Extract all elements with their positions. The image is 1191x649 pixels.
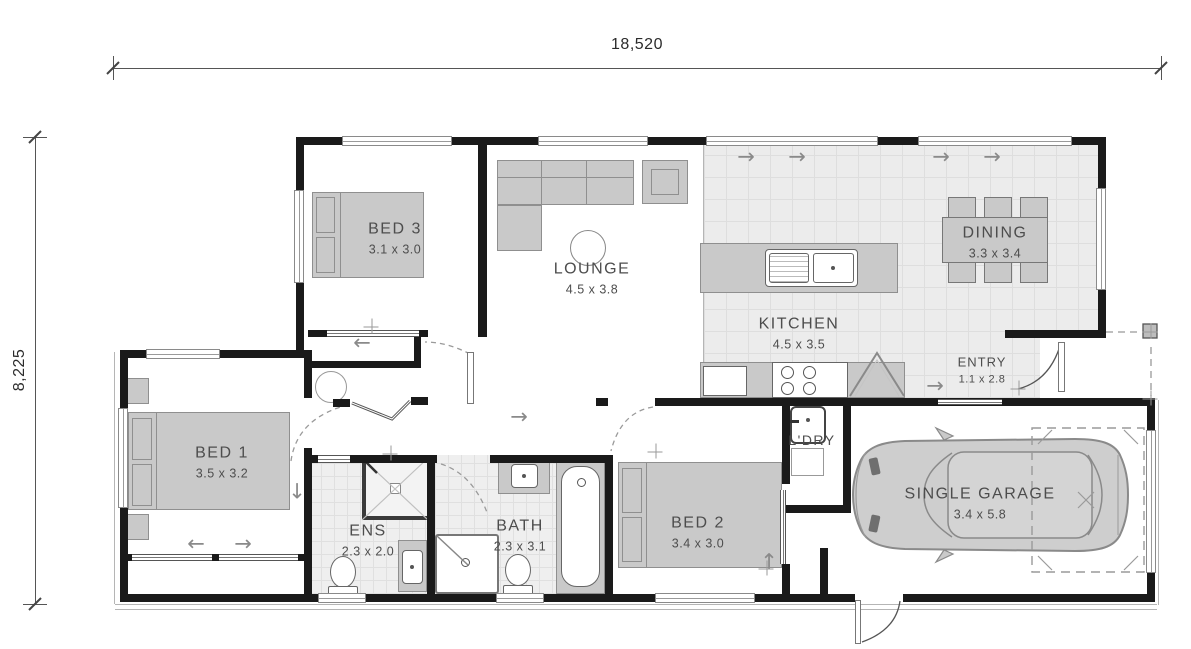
wall-segment xyxy=(296,145,304,190)
room-name: KITCHEN xyxy=(759,312,840,335)
slide-arrow-right-icon: → xyxy=(932,147,950,168)
room-name: L'DRY xyxy=(788,430,835,450)
rear-door-leaf xyxy=(855,600,861,644)
wall-segment xyxy=(605,455,613,594)
window xyxy=(538,136,648,146)
shower-head-icon xyxy=(366,462,377,473)
wall-segment xyxy=(120,594,318,602)
junction-cross xyxy=(759,561,774,576)
room-label-dining: DINING 3.3 x 3.4 xyxy=(963,221,1028,262)
wall-segment xyxy=(544,594,655,602)
room-label-garage: SINGLE GARAGE 3.4 x 5.8 xyxy=(904,482,1055,523)
room-dims: 3.4 x 5.8 xyxy=(904,506,1055,524)
slide-arrow-right-icon: → xyxy=(926,376,944,397)
slide-arrow-right-icon: → xyxy=(510,407,528,428)
garage-internal-door xyxy=(938,399,1002,405)
window xyxy=(655,593,755,603)
wall-segment xyxy=(308,361,421,368)
wall-segment xyxy=(366,594,496,602)
ldry-cavity-slider xyxy=(780,490,786,564)
window xyxy=(146,349,220,359)
floor-plan: BED 3 3.1 x 3.0 LOUNGE 4.5 x 3.8 KITCHEN… xyxy=(0,0,1191,649)
lounge-door-leaf xyxy=(467,352,474,404)
room-label-bed3: BED 3 3.1 x 3.0 xyxy=(368,217,422,258)
wall-segment xyxy=(1147,573,1155,602)
slide-arrow-right-icon: → xyxy=(737,147,755,168)
room-label-kitchen: KITCHEN 4.5 x 3.5 xyxy=(759,312,840,353)
wall-segment xyxy=(1005,330,1106,338)
wall-segment xyxy=(655,398,1147,406)
front-door-leaf xyxy=(1058,342,1065,392)
wall-segment xyxy=(304,448,312,594)
room-label-bed1: BED 1 3.5 x 3.2 xyxy=(195,441,249,482)
window xyxy=(342,136,452,146)
ens-cavity-slider xyxy=(318,455,350,463)
wall-segment xyxy=(843,406,851,505)
wall-segment xyxy=(820,548,828,594)
slide-arrow-left-icon: ← xyxy=(187,534,205,555)
bath-shower-door xyxy=(437,536,468,565)
wall-segment xyxy=(427,455,435,594)
wall-segment xyxy=(878,137,918,145)
room-name: LOUNGE xyxy=(554,257,631,280)
window xyxy=(1096,188,1106,290)
dimension-line-left xyxy=(35,137,36,604)
room-label-ldry: L'DRY xyxy=(788,430,835,450)
junction-cross xyxy=(1143,391,1158,406)
dimension-line-top xyxy=(113,68,1161,69)
pantry-doors xyxy=(850,353,904,396)
wall-segment xyxy=(1072,137,1106,145)
wall-segment xyxy=(903,594,1155,602)
room-dims: 1.1 x 2.8 xyxy=(958,372,1007,388)
slide-arrow-right-icon: → xyxy=(788,147,806,168)
junction-cross xyxy=(364,319,379,334)
room-name: SINGLE GARAGE xyxy=(904,482,1055,505)
room-dims: 3.3 x 3.4 xyxy=(963,245,1028,263)
plan-annotations xyxy=(0,0,1191,649)
room-label-lounge: LOUNGE 4.5 x 3.8 xyxy=(554,257,631,298)
wall-segment xyxy=(411,397,428,405)
junction-cross xyxy=(383,446,398,461)
room-label-ens: ENS 2.3 x 2.0 xyxy=(342,519,394,560)
wall-segment xyxy=(308,330,327,337)
junction-cross xyxy=(1011,381,1026,396)
slide-arrow-right-icon: → xyxy=(234,534,252,555)
room-name: BED 3 xyxy=(368,217,422,240)
wall-segment xyxy=(782,564,790,594)
hall-robe-doors xyxy=(352,401,410,419)
room-dims: 2.3 x 2.0 xyxy=(342,543,394,561)
room-dims: 3.4 x 3.0 xyxy=(671,535,725,553)
room-label-bath: BATH 2.3 x 3.1 xyxy=(494,514,546,555)
slide-arrow-left-icon: ← xyxy=(353,333,371,354)
wall-segment xyxy=(596,398,608,406)
room-dims: 4.5 x 3.5 xyxy=(759,336,840,354)
wall-segment xyxy=(1098,145,1106,188)
slide-arrow-down-icon: ↓ xyxy=(288,482,306,503)
room-name: BED 2 xyxy=(671,511,725,534)
slider-cap xyxy=(212,554,219,561)
slider-cap xyxy=(126,554,132,561)
window xyxy=(496,593,544,603)
wall-segment xyxy=(333,399,350,407)
room-name: ENS xyxy=(342,519,394,542)
slide-arrow-right-icon: → xyxy=(983,147,1001,168)
wall-segment xyxy=(120,350,148,358)
wall-segment xyxy=(120,358,128,408)
dimension-width-label: 18,520 xyxy=(611,36,663,54)
rear-door-swing xyxy=(862,601,900,642)
dimension-height-label: 8,225 xyxy=(11,349,29,392)
wall-segment xyxy=(755,594,855,602)
room-name: DINING xyxy=(963,221,1028,244)
room-label-entry: ENTRY 1.1 x 2.8 xyxy=(958,354,1007,389)
room-dims: 3.5 x 3.2 xyxy=(195,465,249,483)
room-name: ENTRY xyxy=(958,354,1007,373)
room-dims: 4.5 x 3.8 xyxy=(554,281,631,299)
window xyxy=(294,190,304,283)
room-label-bed2: BED 2 3.4 x 3.0 xyxy=(671,511,725,552)
room-name: BED 1 xyxy=(195,441,249,464)
wall-segment xyxy=(304,350,312,398)
window xyxy=(318,593,366,603)
room-dims: 2.3 x 3.1 xyxy=(494,538,546,556)
wall-segment xyxy=(648,137,706,145)
wall-segment xyxy=(220,350,308,358)
wall-segment xyxy=(490,455,613,463)
wall-segment xyxy=(296,137,342,145)
garage-door-opening xyxy=(1146,430,1156,573)
wall-segment xyxy=(452,137,538,145)
room-dims: 3.1 x 3.0 xyxy=(368,241,422,259)
room-name: BATH xyxy=(494,514,546,537)
junction-cross xyxy=(1143,324,1158,339)
junction-cross xyxy=(648,444,663,459)
wall-segment xyxy=(308,455,318,463)
window xyxy=(118,408,128,508)
wall-segment xyxy=(296,283,304,358)
wall-segment xyxy=(782,505,851,513)
slider-cap xyxy=(298,554,304,561)
wall-segment xyxy=(478,145,487,337)
